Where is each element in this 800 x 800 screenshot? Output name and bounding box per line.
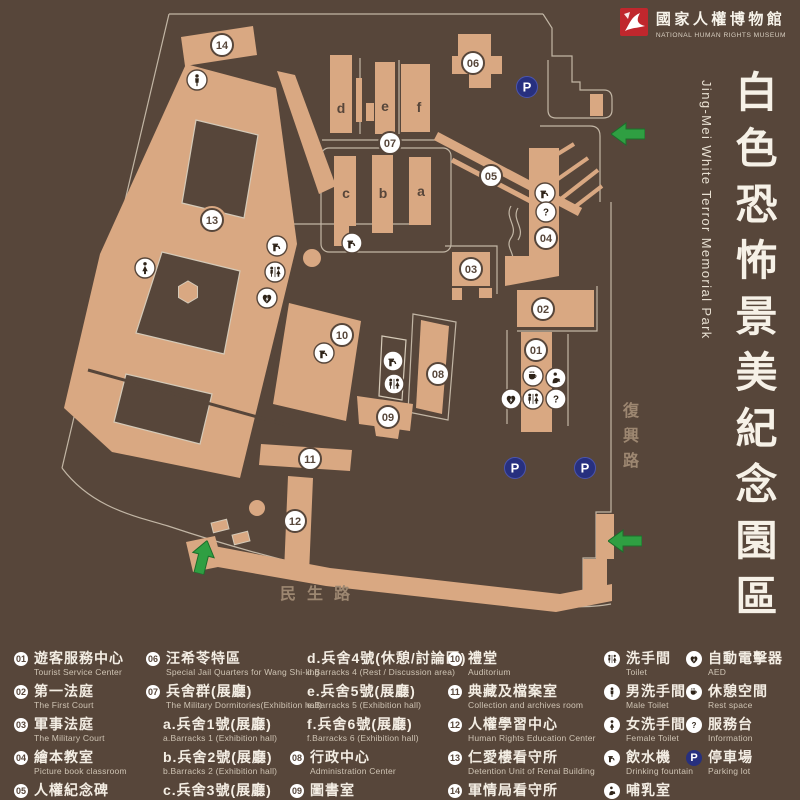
svg-text:05: 05 (485, 171, 497, 183)
barracks-letter-d: d (337, 100, 346, 116)
walkway-south (212, 546, 612, 612)
building-02 (517, 290, 594, 327)
map-icon-aed (501, 389, 521, 409)
svg-text:10: 10 (336, 330, 348, 342)
map-marker-03: 03 (460, 258, 482, 280)
road-label-minsheng: 民生路 (280, 580, 361, 604)
museum-name-en: NATIONAL HUMAN RIGHTS MUSEUM (656, 32, 786, 39)
legend-label-zh: 停車場 (708, 749, 753, 765)
legend-item: 女洗手間Female Toilet (604, 716, 693, 743)
legend-info-icon (686, 717, 702, 733)
road-label-fuxing: 復興路 (616, 402, 640, 477)
legend-label-en: e.Barracks 5 (Exhibition hall) (307, 700, 421, 710)
svg-text:11: 11 (304, 454, 316, 466)
museum-logo-icon (620, 8, 648, 36)
legend-label-en: b.Barracks 2 (Exhibition hall) (163, 766, 277, 776)
legend-item: 飲水機Drinking fountain (604, 749, 693, 776)
legend-label-zh: 繪本教室 (34, 749, 127, 765)
barracks-f (401, 64, 430, 132)
museum-logo: 國家人權博物館 NATIONAL HUMAN RIGHTS MUSEUM (620, 8, 786, 39)
svg-text:12: 12 (289, 516, 301, 528)
map-parking-marker: P (575, 458, 596, 479)
svg-text:02: 02 (537, 304, 549, 316)
legend-label-en: The First Court (34, 700, 94, 710)
svg-text:09: 09 (382, 412, 394, 424)
legend-number-badge: 04 (14, 751, 28, 765)
legend-number-badge: 12 (448, 718, 462, 732)
legend-label-en: Male Toilet (626, 700, 686, 710)
barracks-letter-b: b (379, 185, 388, 201)
map-icon-fountain (535, 183, 555, 203)
svg-text:P: P (511, 461, 520, 476)
legend-number-badge: 13 (448, 751, 462, 765)
svg-text:08: 08 (432, 369, 444, 381)
legend-nursing-icon (604, 783, 620, 799)
legend-item: 休憩空間Rest space (686, 683, 783, 710)
map-icon-info (546, 389, 566, 409)
legend-label-zh: 女洗手間 (626, 716, 686, 732)
map-icon-fountain (314, 343, 334, 363)
building-10 (273, 303, 361, 421)
map-icon-fountain (342, 233, 362, 253)
hexagon-pavilion (179, 281, 198, 303)
legend-number-badge: 07 (146, 685, 160, 699)
map-marker-14: 14 (211, 34, 233, 56)
legend-label-zh: d.兵舍4號(休憩/討論區) (307, 650, 466, 666)
legend-item: 08行政中心Administration Center (290, 749, 466, 776)
map-icon-nursing (546, 368, 566, 388)
legend-number-badge: 05 (14, 784, 28, 798)
legend-label-zh: 仁愛樓看守所 (468, 749, 595, 765)
legend-label-en: Administration Center (310, 766, 396, 776)
legend-item: 03軍事法庭The Military Court (14, 716, 129, 743)
legend-number-badge: 03 (14, 718, 28, 732)
park-title-en: Jing-Mei White Terror Memorial Park (699, 80, 714, 340)
legend-label-zh: 人權紀念碑 (34, 782, 129, 798)
legend-label-en: Toilet (626, 667, 671, 677)
map-marker-10: 10 (331, 324, 353, 346)
legend-aed-icon (686, 651, 702, 667)
legend-label-zh: 第一法庭 (34, 683, 94, 699)
svg-text:03: 03 (465, 264, 477, 276)
park-map: ? (0, 0, 690, 645)
map-marker-09: 09 (377, 406, 399, 428)
svg-text:14: 14 (216, 40, 229, 52)
legend-label-en: f.Barracks 6 (Exhibition hall) (307, 733, 419, 743)
map-icon-fountain (383, 351, 403, 371)
map-icon-rest (523, 366, 543, 386)
svg-text:P: P (581, 461, 590, 476)
map-marker-01: 01 (525, 339, 547, 361)
legend-female-icon (604, 717, 620, 733)
legend-column-1: 01遊客服務中心Tourist Service Center02第一法庭The … (14, 650, 129, 800)
park-map-svg: ? (0, 0, 690, 645)
legend-label-en: a.Barracks 1 (Exhibition hall) (163, 733, 277, 743)
legend-label-en: Human Rights Education Center (468, 733, 596, 743)
entrance-arrow-northeast (611, 123, 645, 145)
map-icon-aed (257, 288, 277, 308)
legend-label-zh: 服務台 (708, 716, 753, 732)
legend-item: f.兵舍6號(展廳)f.Barracks 6 (Exhibition hall) (290, 716, 466, 743)
legend-label-zh: 自動電擊器 (708, 650, 783, 666)
barracks-d (330, 55, 352, 133)
legend-label-en: Female Toilet (626, 733, 686, 743)
map-icon-fountain (267, 236, 287, 256)
legend-label-en: Detention Unit of Renai Building (468, 766, 595, 776)
legend-column-6: 自動電擊器AED休憩空間Rest space服務台InformationP停車場… (686, 650, 783, 782)
legend-item: 哺乳室Nursing room (604, 782, 693, 800)
map-icon-male (187, 70, 207, 90)
map-marker-05: 05 (480, 165, 502, 187)
map-marker-02: 02 (532, 298, 554, 320)
legend-label-zh: 男洗手間 (626, 683, 686, 699)
legend-label-zh: 人權學習中心 (468, 716, 596, 732)
barracks-letter-a: a (417, 183, 425, 199)
legend-item: 05人權紀念碑Human Rights Memorial (14, 782, 129, 800)
map-icon-toilet (523, 389, 543, 409)
legend-label-zh: 行政中心 (310, 749, 396, 765)
legend-label-zh: 遊客服務中心 (34, 650, 124, 666)
svg-text:01: 01 (530, 345, 542, 357)
map-icon-toilet (384, 374, 404, 394)
poster: ? (0, 0, 800, 800)
legend-label-zh: 洗手間 (626, 650, 671, 666)
legend-label-en: Rest space (708, 700, 768, 710)
legend-item: d.兵舍4號(休憩/討論區)d.Barracks 4 (Rest / Discu… (290, 650, 466, 677)
svg-text:13: 13 (206, 215, 218, 227)
legend-male-icon (604, 684, 620, 700)
legend-item: 洗手間Toilet (604, 650, 693, 677)
legend-number-badge: 10 (448, 652, 462, 666)
map-parking-marker: P (517, 77, 538, 98)
legend-label-en: Parking lot (708, 766, 753, 776)
map-marker-04: 04 (535, 227, 557, 249)
legend-fountain-icon (604, 750, 620, 766)
legend-column-5: 洗手間Toilet男洗手間Male Toilet女洗手間Female Toile… (604, 650, 693, 800)
legend-label-zh: 圖書室 (310, 782, 355, 798)
legend-label-zh: 哺乳室 (626, 782, 679, 798)
legend-label-en: Picture book classroom (34, 766, 127, 776)
legend-label-zh: 典藏及檔案室 (468, 683, 583, 699)
legend-label-zh: e.兵舍5號(展廳) (307, 683, 421, 699)
legend-item: 服務台Information (686, 716, 783, 743)
barracks-letter-e: e (381, 98, 389, 114)
legend-label-zh: 禮堂 (468, 650, 511, 666)
map-marker-12: 12 (284, 510, 306, 532)
svg-text:06: 06 (467, 58, 479, 70)
legend-label-en: Auditorium (468, 667, 511, 677)
legend-label-en: d.Barracks 4 (Rest / Discussion area) (307, 667, 466, 677)
legend: 01遊客服務中心Tourist Service Center02第一法庭The … (0, 650, 800, 800)
legend-label-zh: 飲水機 (626, 749, 693, 765)
legend-label-en: Information (708, 733, 753, 743)
legend-label-zh: 休憩空間 (708, 683, 768, 699)
barracks-letter-f: f (417, 99, 422, 115)
legend-number-badge: 11 (448, 685, 462, 699)
legend-item: 02第一法庭The First Court (14, 683, 129, 710)
legend-label-en: AED (708, 667, 783, 677)
svg-text:07: 07 (384, 138, 396, 150)
svg-text:P: P (523, 80, 532, 95)
legend-item: e.兵舍5號(展廳)e.Barracks 5 (Exhibition hall) (290, 683, 466, 710)
map-marker-11: 11 (299, 448, 321, 470)
legend-label-en: Tourist Service Center (34, 667, 124, 677)
legend-label-zh: 軍事法庭 (34, 716, 105, 732)
map-parking-marker: P (505, 458, 526, 479)
legend-number-badge: 06 (146, 652, 160, 666)
legend-number-badge: 09 (290, 784, 304, 798)
barracks-letter-c: c (342, 185, 350, 201)
legend-label-zh: f.兵舍6號(展廳) (307, 716, 419, 732)
legend-number-badge: 02 (14, 685, 28, 699)
map-icon-info (536, 202, 556, 222)
legend-item: 04繪本教室Picture book classroom (14, 749, 129, 776)
legend-rest-icon (686, 684, 702, 700)
map-icon-female (135, 258, 155, 278)
svg-text:04: 04 (540, 233, 553, 245)
legend-label-zh: a.兵舍1號(展廳) (163, 716, 277, 732)
legend-item: P停車場Parking lot (686, 749, 783, 776)
legend-number-badge: 08 (290, 751, 304, 765)
map-marker-06: 06 (462, 52, 484, 74)
legend-label-en: The Military Court (34, 733, 105, 743)
legend-label-zh: b.兵舍2號(展廳) (163, 749, 277, 765)
legend-item: 01遊客服務中心Tourist Service Center (14, 650, 129, 677)
museum-name-zh: 國家人權博物館 (656, 8, 786, 29)
map-marker-07: 07 (379, 132, 401, 154)
legend-number-badge: 01 (14, 652, 28, 666)
map-marker-08: 08 (427, 363, 449, 385)
legend-label-en: Drinking fountain (626, 766, 693, 776)
legend-item: 09圖書室Library (290, 782, 466, 800)
map-icon-toilet (265, 262, 285, 282)
legend-label-zh: c.兵舍3號(展廳) (163, 782, 277, 798)
legend-number-badge: 14 (448, 784, 462, 798)
legend-column-3: d.兵舍4號(休憩/討論區)d.Barracks 4 (Rest / Discu… (290, 650, 466, 800)
legend-toilet-icon (604, 651, 620, 667)
map-marker-13: 13 (201, 209, 223, 231)
legend-parking-icon: P (686, 750, 702, 766)
legend-item: 男洗手間Male Toilet (604, 683, 693, 710)
legend-item: 自動電擊器AED (686, 650, 783, 677)
legend-label-en: Collection and archives room (468, 700, 583, 710)
park-title-zh: 白色恐怖景美紀念園區 (723, 70, 784, 630)
